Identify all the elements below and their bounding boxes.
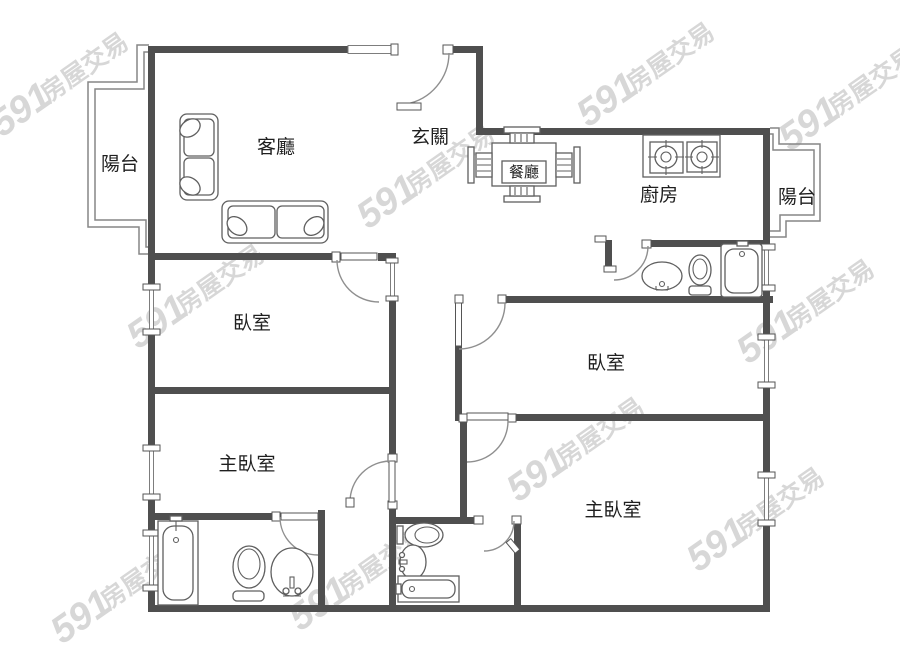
sofa-icon <box>222 201 328 243</box>
room-label-balcony-left: 陽台 <box>101 153 139 175</box>
bathtub-icon <box>396 576 459 602</box>
bathtub-icon <box>721 241 762 297</box>
sofa-icon <box>176 114 218 200</box>
svg-text:房屋交易: 房屋交易 <box>823 41 900 122</box>
balcony-left-railing <box>88 45 149 254</box>
room-label-bedroom-right: 臥室 <box>587 352 625 374</box>
svg-text:房屋交易: 房屋交易 <box>731 462 830 543</box>
toilet-icon <box>689 255 711 295</box>
window <box>143 445 160 500</box>
room-label-living-room: 客廳 <box>257 136 295 158</box>
watermark-text: 591 房屋交易 <box>0 20 137 145</box>
room-label-dining: 餐廳 <box>509 163 539 181</box>
floor-plan-canvas: 591 房屋交易 591 房屋交易 591 房屋交易 591 房屋交易 591 … <box>0 0 900 649</box>
sink-icon <box>271 548 313 596</box>
svg-text:房屋交易: 房屋交易 <box>551 392 650 473</box>
watermark-text: 591 房屋交易 <box>569 10 723 135</box>
watermark-text: 591 房屋交易 <box>119 232 273 357</box>
balcony-right-railing <box>770 128 820 237</box>
sink-icon <box>642 262 682 290</box>
room-label-kitchen: 廚房 <box>640 183 678 206</box>
floor-plan-image: 591 房屋交易 591 房屋交易 591 房屋交易 591 房屋交易 591 … <box>0 0 900 649</box>
bedroom-right-door <box>455 295 506 349</box>
room-label-bedroom-left: 臥室 <box>233 312 271 334</box>
window <box>386 258 398 301</box>
svg-text:房屋交易: 房屋交易 <box>35 27 134 108</box>
room-label-entrance: 玄關 <box>411 126 449 148</box>
bedroom-left-door <box>332 252 379 302</box>
bathtub-icon <box>158 516 198 605</box>
watermark-text: 591 房屋交易 <box>679 455 833 580</box>
master-right-door <box>459 413 516 462</box>
room-label-balcony-right: 陽台 <box>778 186 816 208</box>
svg-text:房屋交易: 房屋交易 <box>781 254 880 335</box>
svg-text:房屋交易: 房屋交易 <box>171 239 270 320</box>
room-label-master-right: 主臥室 <box>584 499 641 521</box>
svg-text:房屋交易: 房屋交易 <box>621 17 720 98</box>
master-left-door <box>346 454 397 509</box>
room-label-master-left: 主臥室 <box>218 453 275 475</box>
toilet-icon <box>233 546 265 601</box>
entrance-door <box>391 44 453 110</box>
watermark-text: 591 房屋交易 <box>771 34 900 159</box>
stove-icon <box>643 135 720 177</box>
sink-icon <box>399 545 426 579</box>
window <box>348 46 397 54</box>
bathroom-middle-door <box>474 516 521 553</box>
watermark-text: 591 房屋交易 <box>499 385 653 510</box>
